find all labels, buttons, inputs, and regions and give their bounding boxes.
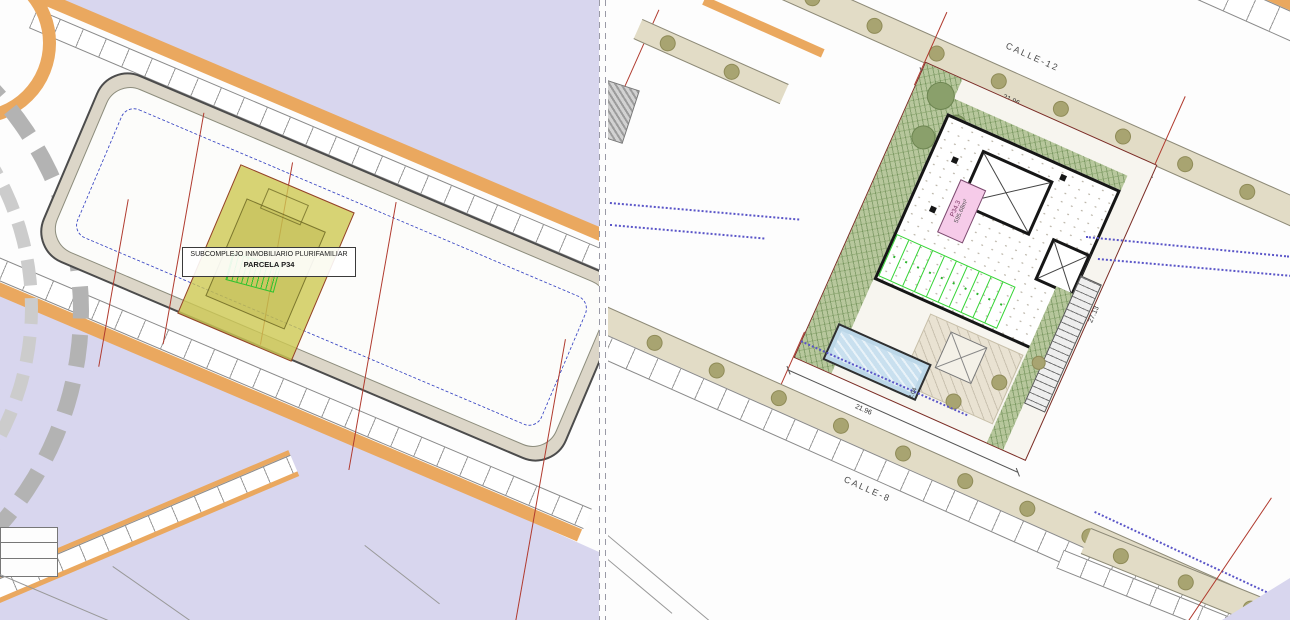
viewport-divider [599,0,600,620]
column-marker [1059,174,1067,182]
plot-scene: CALLE-12 27.13 [608,0,1290,620]
parcel-label-box: SUBCOMPLEJO INMOBILIARIO PLURIFAMILIAR P… [182,247,356,277]
tree-icon [721,61,742,82]
tree-icon [657,33,678,54]
parking-stalls [878,234,1015,329]
viewport-divider [605,0,606,620]
schematic-structure [0,527,58,577]
plot-detail-panel: CALLE-12 27.13 [608,0,1290,620]
parcel-label-line1: SUBCOMPLEJO INMOBILIARIO PLURIFAMILIAR [183,251,355,258]
column-marker [929,206,937,214]
tree-icon [1110,546,1131,567]
schematic-line [1,558,57,559]
column-marker [951,156,959,164]
plot-area-tag: P34.3 595.68m² [938,179,985,241]
schematic-line [1,542,57,543]
tree-icon [1175,572,1196,593]
parcel-label-line2: PARCELA P34 [183,260,355,269]
overview-plan-panel: SUBCOMPLEJO INMOBILIARIO PLURIFAMILIAR P… [0,0,599,620]
site-plan-viewport: SUBCOMPLEJO INMOBILIARIO PLURIFAMILIAR P… [0,0,1290,620]
